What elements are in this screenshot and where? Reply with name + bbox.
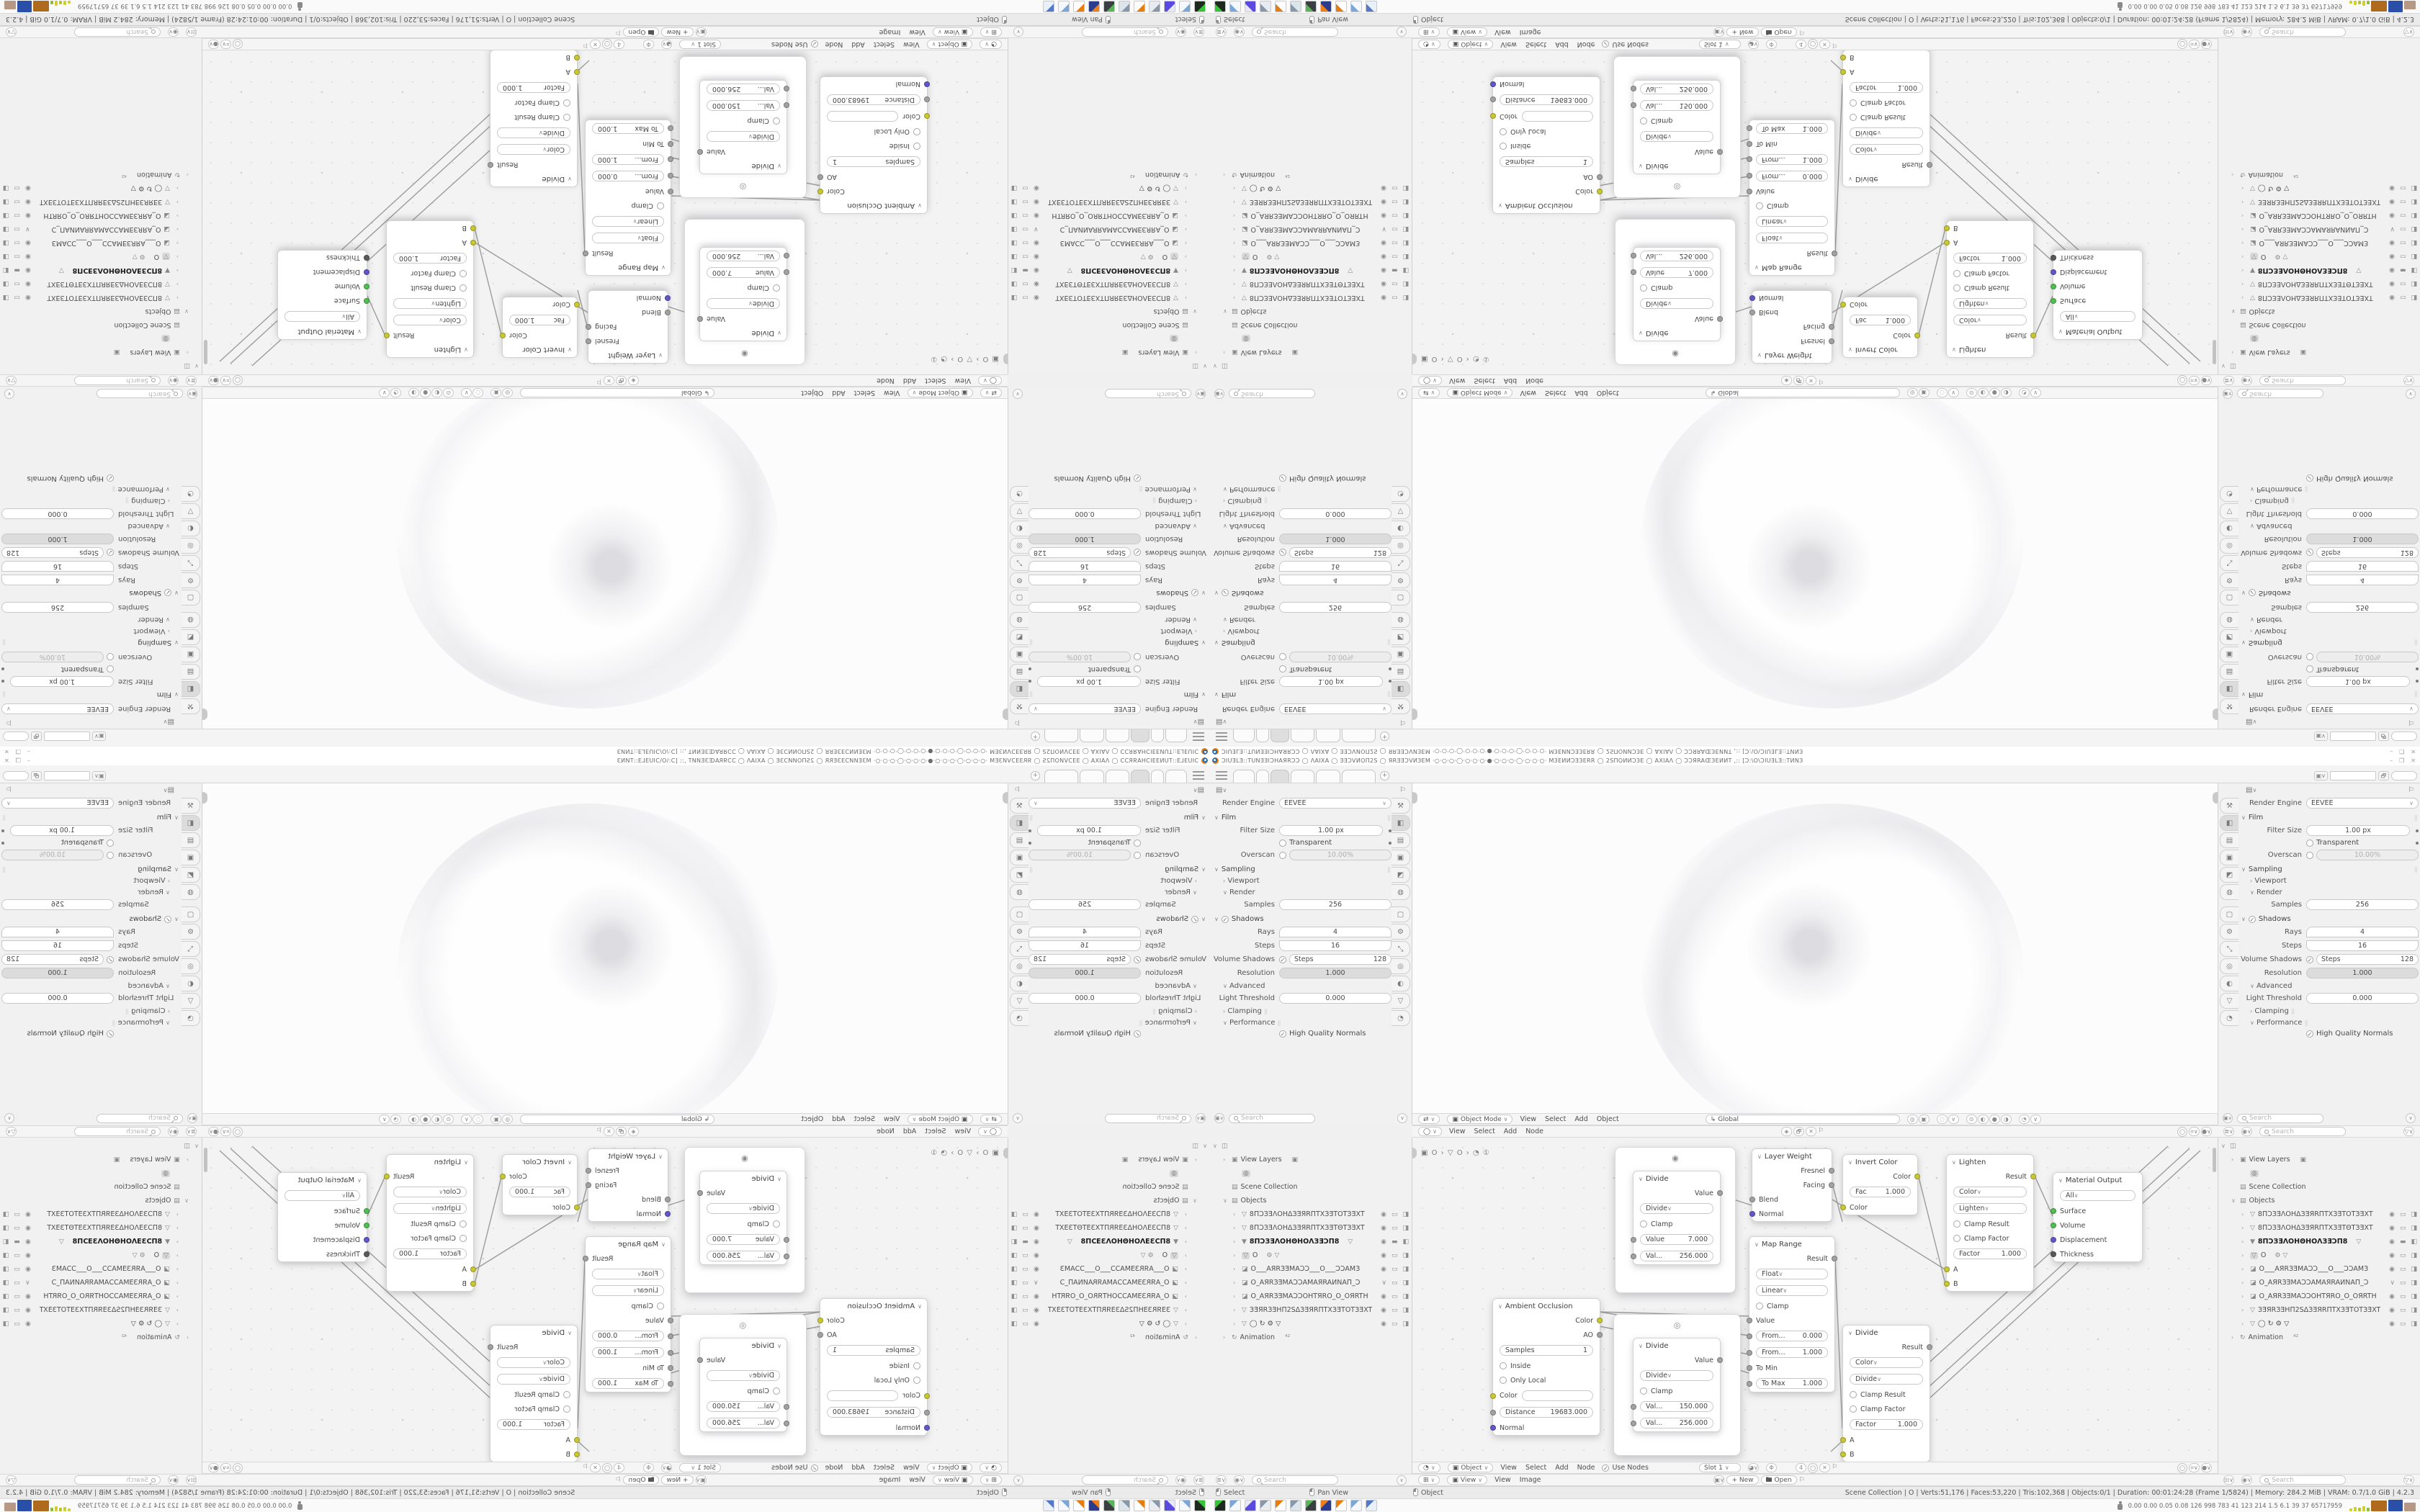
node-color-input[interactable]: Color: [820, 1387, 927, 1404]
visibility-icon[interactable]: ◨: [2411, 1252, 2417, 1259]
shading-toggles[interactable]: ◔∨: [2019, 388, 2041, 397]
shader-menu-view[interactable]: View: [1500, 1464, 1517, 1472]
slot-select[interactable]: Slot 1∨: [1699, 40, 1741, 49]
visibility-icon[interactable]: ▭: [1023, 1307, 1029, 1314]
node-field-factor[interactable]: Factor1.000: [1843, 79, 1930, 96]
prop-filter-size[interactable]: Filter Size1.00 px: [1213, 825, 1391, 836]
input-socket[interactable]: [1631, 253, 1636, 259]
node-divide[interactable]: ∨DivideValueDivide∨ClampVal...150.000Val…: [699, 80, 787, 174]
image-datablock[interactable]: ▣∨ + New 🖿 Open ⚐: [615, 27, 707, 37]
node-select[interactable]: All∨: [2053, 1187, 2142, 1204]
node-header[interactable]: ∨Lighten: [387, 1155, 473, 1169]
outliner-row[interactable]: ›▽O⚙ ▽◉▭◨: [1010, 250, 1207, 264]
visibility-icon[interactable]: ▭: [1023, 199, 1029, 206]
node-select[interactable]: Divide∨: [1633, 1200, 1720, 1217]
output-socket[interactable]: [1717, 149, 1723, 155]
output-socket[interactable]: [2030, 333, 2036, 338]
shader-bottom-right[interactable]: ◯⌗∨●∨: [2177, 1463, 2212, 1473]
user-filter-icon[interactable]: ◉∨: [2241, 27, 2252, 37]
node-select[interactable]: Divide∨: [1633, 128, 1720, 145]
visibility-icon[interactable]: ▭: [14, 1211, 21, 1218]
display-mode-icon[interactable]: ≣∨: [2223, 376, 2234, 385]
output-socket[interactable]: [817, 1318, 823, 1323]
outliner-row[interactable]: ▤Scene Collection: [1213, 318, 1410, 332]
visibility-icon[interactable]: ◨: [2411, 253, 2417, 261]
node-field-fac[interactable]: Fac1.000: [503, 1184, 577, 1200]
workspace-tab[interactable]: [1233, 770, 1255, 783]
image-menu-image[interactable]: Image: [879, 1476, 901, 1484]
viewport-menu-add[interactable]: Add: [1574, 1115, 1587, 1123]
datablock-name-field[interactable]: [2330, 771, 2376, 780]
visibility-icon[interactable]: ▭: [2400, 294, 2406, 302]
panel-subsection-performance[interactable]: ∨ Performance ⣿: [1223, 1019, 1391, 1027]
editor-type-button[interactable]: ⇄∨: [1418, 388, 1440, 397]
sidebar-toggle[interactable]: [202, 708, 207, 720]
visibility-icon[interactable]: ▭: [1023, 212, 1029, 220]
prop-overscan[interactable]: Overscan10.00%: [2240, 850, 2419, 860]
visibility-icon[interactable]: ▬: [14, 267, 21, 274]
menu-icon[interactable]: [1193, 771, 1204, 780]
outliner-row[interactable]: ›▣View Layers▣: [2221, 346, 2419, 359]
prop-steps[interactable]: Steps16: [1028, 940, 1207, 951]
node-select[interactable]: Divide∨: [700, 1367, 786, 1384]
prop-resolution[interactable]: Resolution1.000: [2240, 534, 2419, 544]
properties-tab-icon[interactable]: ▤: [1010, 832, 1028, 848]
panel-section-shadows[interactable]: ∨✓Shadows: [1, 915, 179, 923]
shader-sidebar-toggle[interactable]: [1412, 1148, 1417, 1158]
outliner-row[interactable]: ›▽◯ ↻ ⚙ ▽◉▭◨: [1213, 181, 1410, 195]
input-socket[interactable]: [784, 1237, 789, 1243]
input-socket[interactable]: [2051, 1251, 2056, 1257]
input-socket[interactable]: [924, 1410, 930, 1416]
node-divide[interactable]: ∨DivideValueDivide∨ClampVal...150.000Val…: [1633, 80, 1721, 174]
panel-subsection-viewport[interactable]: › Viewport: [1223, 877, 1391, 885]
input-socket[interactable]: [1749, 295, 1755, 301]
shader-menu-add[interactable]: Add: [1555, 40, 1568, 48]
taskbar-app-blender[interactable]: [1134, 1, 1145, 12]
editor-type-icon[interactable]: ▣∨: [1196, 389, 1206, 399]
panel-subsection-performance[interactable]: ∨ Performance ⣿: [1223, 485, 1391, 493]
properties-tab-icon[interactable]: ◧: [2220, 815, 2238, 831]
taskbar-app-documents[interactable]: [1043, 1, 1054, 12]
outliner-search-input[interactable]: Search: [2259, 1127, 2346, 1136]
node-select[interactable]: Lighten∨: [387, 1200, 473, 1217]
properties-tab-icon[interactable]: ◐: [1010, 976, 1028, 991]
output-socket[interactable]: [500, 1174, 506, 1179]
outliner-row[interactable]: ∨◫: [1, 1139, 199, 1153]
input-socket[interactable]: [668, 157, 673, 163]
outliner-row[interactable]: ›◪O_AЯRЗƎMAƆƆOHTЯRO_O_OЯRTH◉▭◨: [2221, 209, 2419, 222]
panel-subsection-render[interactable]: ∨ Render: [2250, 888, 2419, 896]
panel-subsection-performance[interactable]: ∨ Performance ⣿: [1028, 485, 1197, 493]
visibility-icon[interactable]: ◉: [25, 1211, 31, 1218]
visibility-icon[interactable]: ◉: [25, 281, 31, 288]
visibility-icon[interactable]: ◨: [1011, 1320, 1018, 1328]
outliner-row[interactable]: ›▽O⚙ ▽◉▭◨: [1010, 1248, 1207, 1262]
node-color-input[interactable]: Color: [1493, 108, 1600, 125]
visibility-icon[interactable]: ▭: [14, 1320, 21, 1328]
node-field-value[interactable]: Value7.000: [1633, 264, 1720, 281]
outliner-row[interactable]: ›▽8ПƆЗƎΛOHΔЗƎЯRПTXЗƎTΘTЗƎXT◉▭◨: [1, 1221, 199, 1235]
add-workspace-button[interactable]: +: [1380, 771, 1389, 780]
filter-icon[interactable]: ◉∨: [168, 376, 179, 385]
visibility-icon[interactable]: ▭: [1391, 226, 1398, 233]
sidebar-toggle[interactable]: [2213, 792, 2218, 804]
taskbar-app-calculator[interactable]: [1149, 1, 1160, 12]
node-map-range[interactable]: ∨Map RangeResultFloat∨Linear∨ClampValueF…: [585, 1236, 671, 1392]
output-socket[interactable]: [1829, 324, 1834, 330]
properties-tab-icon[interactable]: ◎: [2220, 538, 2238, 554]
window-control-button[interactable]: ❐: [2399, 757, 2404, 764]
node-field-val...[interactable]: Val...256.000: [700, 1415, 786, 1431]
prop-filter-size[interactable]: Filter Size1.00 px: [1028, 825, 1207, 836]
visibility-icon[interactable]: ▭: [1391, 1320, 1398, 1328]
prop-light-threshold[interactable]: Light Threshold0.000: [2240, 993, 2419, 1004]
node-header[interactable]: ∨Invert Color: [1843, 343, 1917, 357]
shader-type-select[interactable]: ▣ Object∨: [1448, 40, 1494, 49]
visibility-icon[interactable]: ◨: [1402, 240, 1409, 247]
properties-tab-icon[interactable]: ▢: [1391, 590, 1410, 606]
node-layer-weight[interactable]: ∨Layer WeightFresnelFacingBlendNormal: [588, 1148, 668, 1222]
taskbar-app-calculator2[interactable]: [1119, 1, 1130, 12]
visibility-icon[interactable]: ◉: [2389, 1252, 2395, 1259]
output-socket[interactable]: [1829, 1168, 1834, 1174]
prop-rays[interactable]: Rays4: [2240, 927, 2419, 937]
node-header[interactable]: ∨Material Output: [2053, 325, 2142, 339]
output-socket[interactable]: [817, 189, 823, 194]
shader-bottom-right[interactable]: ◯⌗∨●∨: [208, 1463, 243, 1473]
node-checkbox-clamp[interactable]: Clamp: [700, 1384, 786, 1398]
node-layer-weight[interactable]: ∨Layer WeightFresnelFacingBlendNormal: [1752, 1148, 1832, 1222]
properties-tab-icon[interactable]: ◩: [1391, 867, 1410, 883]
panel-subsection-performance[interactable]: ∨ Performance ⣿: [2250, 1019, 2419, 1027]
node-material-output[interactable]: ∨Material OutputAll∨SurfaceVolumeDisplac…: [2053, 250, 2143, 340]
output-socket[interactable]: [586, 1182, 591, 1188]
add-workspace-button[interactable]: +: [1031, 732, 1040, 741]
output-socket[interactable]: [1832, 251, 1837, 256]
outliner-search-input[interactable]: Search: [1082, 1475, 1168, 1485]
taskbar-app-notepad2[interactable]: [1058, 1, 1070, 12]
properties-tab-icon[interactable]: ⚙: [1391, 924, 1410, 940]
input-socket[interactable]: [1944, 1281, 1950, 1287]
input-socket[interactable]: [668, 1333, 673, 1339]
node-field-from...[interactable]: From...0.000: [1749, 168, 1834, 184]
panel-subsection-viewport[interactable]: › Viewport: [1, 627, 170, 635]
visibility-icon[interactable]: ▭: [1023, 1252, 1029, 1259]
copy-icon[interactable]: 🗗: [2378, 771, 2389, 780]
output-socket[interactable]: [1597, 189, 1603, 194]
visibility-icon[interactable]: ∨: [1381, 226, 1386, 233]
input-socket[interactable]: [1631, 270, 1636, 276]
node-checkbox-clamp[interactable]: Clamp: [700, 1217, 786, 1231]
prop-rays[interactable]: Rays4: [2240, 575, 2419, 585]
prop-render-engine[interactable]: Render EngineEEVEE∨: [1028, 798, 1207, 809]
node-header[interactable]: ∨Divide: [1633, 326, 1720, 341]
mode-select[interactable]: ▣ Object Mode∨: [1447, 1115, 1512, 1124]
toolbar-toggle[interactable]: [1412, 792, 1417, 804]
panel-section-film[interactable]: ∨Film⣿: [2241, 690, 2419, 698]
visibility-icon[interactable]: ∨: [2390, 1279, 2395, 1287]
prop-transparent[interactable]: Transparent: [2240, 665, 2419, 673]
properties-tab-icon[interactable]: ◎: [2220, 958, 2238, 974]
properties-tab-icon[interactable]: ◧: [1391, 681, 1410, 697]
panel-subsection-advanced[interactable]: ∨ Advanced: [1, 522, 170, 530]
viewport-menu-select[interactable]: Select: [854, 389, 875, 397]
node-field-val...[interactable]: Val...256.000: [1633, 81, 1720, 97]
shader-menu-select[interactable]: Select: [1474, 1128, 1494, 1135]
material-datablock[interactable]: ◈🗗✕⚐: [596, 1127, 639, 1136]
visibility-icon[interactable]: ◨: [1011, 1266, 1018, 1273]
output-socket[interactable]: [1927, 1344, 1932, 1350]
node-field-val...[interactable]: Val...150.000: [1633, 97, 1720, 114]
orientation-select[interactable]: ↳ Global: [520, 388, 714, 397]
properties-editor-icon[interactable]: ▤∨: [2246, 719, 2257, 726]
node-select[interactable]: Color∨: [1843, 141, 1930, 158]
use-nodes-checkbox[interactable]: ✓Use Nodes: [771, 1464, 818, 1472]
prop-transparent[interactable]: Transparent: [1, 839, 180, 847]
visibility-icon[interactable]: ◉: [1034, 1238, 1039, 1246]
node-field-val...[interactable]: Val...256.000: [1633, 248, 1720, 264]
visibility-icon[interactable]: ▭: [1391, 199, 1398, 206]
shader-bottom-right[interactable]: ◯⌗∨●∨: [2177, 40, 2212, 50]
properties-tab-icon[interactable]: ◐: [1391, 976, 1410, 991]
outliner-row[interactable]: ▤Scene Collection: [1010, 318, 1207, 332]
datablock-name-field[interactable]: [44, 732, 90, 741]
node-field-val...[interactable]: Val...150.000: [700, 97, 786, 114]
visibility-icon[interactable]: ◨: [1011, 1307, 1018, 1314]
options-icon[interactable]: ∨: [1397, 1475, 1407, 1485]
visibility-icon[interactable]: ▭: [14, 240, 21, 247]
visibility-icon[interactable]: ◉: [25, 240, 31, 247]
input-socket[interactable]: [668, 189, 673, 194]
workspace-tab[interactable]: [1151, 729, 1164, 742]
properties-tab-icon[interactable]: ▽: [1010, 993, 1028, 1009]
outliner-row[interactable]: ›▼8ПƆЗƎΛOHΘHOΛЗƎƆП8▽◉▬◧: [1010, 264, 1207, 277]
node-header[interactable]: ∨Material Output: [2053, 1173, 2142, 1187]
snap-toggles[interactable]: ◎▣: [1907, 388, 1930, 397]
input-socket[interactable]: [364, 1223, 369, 1228]
prop-filter-size[interactable]: Filter Size1.00 px: [1028, 676, 1207, 687]
prop-high-quality-normals[interactable]: ✓High Quality Normals: [1028, 474, 1207, 482]
window-control-button[interactable]: ✕: [2411, 748, 2416, 755]
outliner-row[interactable]: ›▣View Layers▣: [1010, 346, 1207, 359]
datablock-name-field[interactable]: [2330, 732, 2376, 741]
material-datablock[interactable]: ◈🗗✕⚐: [1781, 376, 1824, 385]
properties-tab-icon[interactable]: ◩: [1010, 867, 1028, 883]
node-divide[interactable]: ∨DivideValueDivide∨ClampValue7.000Val...…: [699, 247, 787, 341]
visibility-icon[interactable]: ▭: [2400, 226, 2406, 233]
node-field-from...[interactable]: From...1.000: [586, 1344, 671, 1361]
node-field-distance[interactable]: Distance19683.000: [820, 1404, 927, 1421]
workspace-tab[interactable]: [1342, 770, 1376, 783]
node-ambient-occlusion[interactable]: ∨Ambient OcclusionColorAOSamples1InsideO…: [820, 1298, 928, 1436]
window-control-button[interactable]: ✕: [4, 757, 9, 764]
node-field-value[interactable]: Value7.000: [700, 264, 786, 281]
prop-rays[interactable]: Rays4: [1, 927, 180, 937]
outliner-row[interactable]: ›▽O⚙ ▽◉▭◨: [2221, 250, 2419, 264]
visibility-icon[interactable]: ◉: [1381, 199, 1386, 206]
viewport-menu-select[interactable]: Select: [1545, 389, 1566, 397]
visibility-icon[interactable]: ◨: [1402, 1266, 1409, 1273]
panel-section-sampling[interactable]: ∨Sampling⣿: [2241, 639, 2419, 647]
editor-type-icon[interactable]: ▣∨: [1214, 389, 1224, 399]
node-field-factor[interactable]: Factor1.000: [490, 79, 577, 96]
outliner-row[interactable]: ›▽ЗƎЯRЗƎHП2SΔЗƎЯRПTXЗƎTOTЗƎXT◉▭◨: [1213, 1303, 1410, 1317]
shader-menu-view[interactable]: View: [903, 1464, 920, 1472]
prop-render-engine[interactable]: Render EngineEEVEE∨: [1213, 798, 1391, 809]
visibility-icon[interactable]: ◉: [2389, 1307, 2395, 1314]
node-select[interactable]: Linear∨: [1749, 213, 1834, 230]
properties-tab-icon[interactable]: ◍: [1391, 612, 1410, 628]
node-invert-color[interactable]: ∨Invert ColorColorFac1.000Color: [502, 297, 578, 358]
input-socket[interactable]: [1944, 1266, 1950, 1272]
properties-tab-icon[interactable]: ⚙: [1391, 572, 1410, 588]
visibility-icon[interactable]: ◨: [2411, 1293, 2417, 1300]
panel-section-shadows[interactable]: ∨✓Shadows: [2241, 589, 2419, 597]
workspace-tab[interactable]: [1233, 729, 1255, 742]
visibility-icon[interactable]: ▬: [1391, 267, 1398, 274]
visibility-icon[interactable]: ▭: [1023, 1320, 1029, 1328]
outliner-row[interactable]: ›◪O___AЯRЗƎMAƆƆ___O___ƆƆAMЗ◉▭◨: [1010, 1262, 1207, 1276]
panel-section-shadows[interactable]: ∨✓Shadows: [1028, 915, 1206, 923]
prop-light-threshold[interactable]: Light Threshold0.000: [1213, 508, 1391, 519]
visibility-icon[interactable]: ▭: [14, 253, 21, 261]
node-select[interactable]: Color∨: [1947, 312, 2033, 328]
properties-tab-icon[interactable]: ▤: [2220, 832, 2238, 848]
node-header[interactable]: ∨Ambient Occlusion: [1493, 199, 1600, 213]
prop-transparent[interactable]: Transparent: [1, 665, 180, 673]
visibility-icon[interactable]: ◉: [1034, 185, 1039, 192]
taskbar-app-documents[interactable]: [1366, 1, 1377, 12]
image-menu-image[interactable]: Image: [1520, 28, 1541, 36]
properties-tab-icon[interactable]: ◐: [2220, 521, 2238, 536]
prop-transparent[interactable]: Transparent: [1213, 839, 1391, 847]
outliner-row[interactable]: ›▽ЗƎЯRЗƎHП2SΔЗƎЯRПTXЗƎTOTЗƎXT◉▭◨: [1010, 195, 1207, 209]
node-header[interactable]: ∨Map Range: [586, 261, 671, 275]
prop-steps[interactable]: Steps16: [2240, 561, 2419, 572]
shader-menu-select[interactable]: Select: [1474, 377, 1494, 384]
viewport-menu-object[interactable]: Object: [801, 1115, 823, 1123]
outliner-row[interactable]: ›▽8ПƆЗƎΛOHΔЗƎЯRПTXЗƎTOTЗƎXT◉▭◨: [1, 291, 199, 305]
properties-tab-icon[interactable]: ⚙: [181, 572, 200, 588]
output-socket[interactable]: [586, 338, 591, 344]
input-socket[interactable]: [1631, 1421, 1636, 1426]
visibility-icon[interactable]: ◨: [1402, 199, 1409, 206]
properties-tab-icon[interactable]: ◩: [181, 867, 200, 883]
node-select[interactable]: Divide∨: [1633, 1367, 1720, 1384]
node-select[interactable]: All∨: [2053, 308, 2142, 325]
prop-rays[interactable]: Rays4: [1028, 575, 1207, 585]
options-icon[interactable]: ∨: [4, 1113, 14, 1123]
visibility-icon[interactable]: ◉: [25, 294, 31, 302]
visibility-icon[interactable]: ▭: [14, 1293, 21, 1300]
visibility-icon[interactable]: ◨: [2411, 294, 2417, 302]
node-field-samples[interactable]: Samples1: [1493, 1342, 1600, 1359]
input-socket[interactable]: [1747, 1318, 1752, 1323]
taskbar-app-calculator[interactable]: [1260, 1, 1271, 12]
properties-tab-icon[interactable]: ⚒: [1391, 798, 1410, 814]
visibility-icon[interactable]: ◨: [2411, 185, 2417, 192]
proportional-toggles[interactable]: ◌∨: [1937, 388, 1959, 397]
taskbar-app-terminal[interactable]: [1214, 1, 1226, 12]
visibility-icon[interactable]: ∨: [1034, 226, 1039, 233]
prop-resolution[interactable]: Resolution1.000: [1, 534, 180, 544]
proportional-toggles[interactable]: ◌∨: [461, 388, 483, 397]
outliner-row[interactable]: ›▽◯ ↻ ⚙ ▽◉▭◨: [1010, 1317, 1207, 1331]
outliner-row[interactable]: ›▽O⚙ ▽◉▭◨: [1213, 250, 1410, 264]
material-preview-icon[interactable]: Φ: [643, 1463, 654, 1472]
outliner-row[interactable]: ›↻Animation⁴²: [2221, 1331, 2419, 1344]
panel-subsection-render[interactable]: ∨ Render: [2250, 616, 2419, 624]
taskbar-app-notepad2[interactable]: [1350, 1, 1362, 12]
panel-subsection-viewport[interactable]: › Viewport: [1028, 877, 1197, 885]
snap-toggles[interactable]: ◎▣: [1907, 1115, 1930, 1124]
window-control-button[interactable]: ❐: [16, 757, 21, 764]
visibility-icon[interactable]: ◨: [1402, 185, 1409, 192]
input-socket[interactable]: [1490, 1393, 1496, 1399]
mode-select[interactable]: ▣ Object Mode∨: [907, 1115, 973, 1124]
editor-type-button[interactable]: ◯∨: [1418, 1127, 1442, 1136]
prop-volume-shadows[interactable]: Volume Shadows✓Steps128: [2240, 954, 2419, 965]
node-field-val...[interactable]: Val...256.000: [700, 248, 786, 264]
input-socket[interactable]: [1840, 69, 1846, 75]
input-socket[interactable]: [1840, 1437, 1846, 1443]
outliner-row[interactable]: ›▽O⚙ ▽◉▭◨: [1, 250, 199, 264]
prop-steps[interactable]: Steps16: [2240, 940, 2419, 951]
slot-select[interactable]: Slot 1∨: [679, 1463, 721, 1472]
visibility-icon[interactable]: ▬: [1023, 1238, 1029, 1246]
properties-search-input[interactable]: Search: [1105, 1114, 1191, 1123]
shader-menu-select[interactable]: Select: [925, 1128, 946, 1135]
taskbar-app-documents[interactable]: [1366, 1500, 1377, 1511]
node-checkbox-clamp-factor[interactable]: Clamp Factor: [1843, 1402, 1930, 1416]
panel-subsection-render[interactable]: ∨ Render: [1028, 888, 1197, 896]
panel-section-film[interactable]: ∨Film⣿: [1, 814, 179, 822]
input-socket[interactable]: [665, 1197, 671, 1202]
visibility-icon[interactable]: ▬: [1023, 267, 1029, 274]
taskbar-app-calculator2[interactable]: [1290, 1500, 1301, 1511]
visibility-icon[interactable]: ◨: [1011, 199, 1018, 206]
workspace-tab[interactable]: [1291, 729, 1314, 742]
input-socket[interactable]: [668, 1318, 673, 1323]
properties-tab-icon[interactable]: ▣: [181, 850, 200, 865]
display-mode-icon[interactable]: 𝍖∨: [2223, 1475, 2234, 1485]
prop-resolution[interactable]: Resolution1.000: [1028, 534, 1207, 544]
visibility-icon[interactable]: ▬: [2400, 1238, 2406, 1246]
taskbar-app-firefox[interactable]: [1320, 1500, 1332, 1511]
output-socket[interactable]: [697, 316, 703, 322]
visibility-icon[interactable]: ◨: [3, 1266, 9, 1273]
snap-toggles[interactable]: ◎▣: [490, 1115, 513, 1124]
options-icon[interactable]: ∨: [1013, 389, 1023, 399]
outliner-row[interactable]: ◍: [1010, 332, 1207, 346]
prop-volume-shadows[interactable]: Volume Shadows✓Steps128: [1028, 547, 1207, 558]
visibility-icon[interactable]: ◉: [25, 199, 31, 206]
properties-tab-icon[interactable]: ▢: [1010, 590, 1028, 606]
viewport-3d[interactable]: [1412, 399, 2218, 729]
node-field-val...[interactable]: Val...256.000: [700, 1248, 786, 1264]
taskbar-app-blender[interactable]: [1275, 1, 1286, 12]
outliner-row[interactable]: ›▽8ПƆЗƎΛOHΔЗƎЯRПTXЗƎTΘTЗƎXT◉▭◨: [2221, 277, 2419, 291]
node-header[interactable]: ∨Divide: [700, 1338, 786, 1353]
properties-tab-icon[interactable]: ◧: [2220, 681, 2238, 697]
output-socket[interactable]: [697, 1357, 703, 1363]
visibility-icon[interactable]: ◨: [1011, 1225, 1018, 1232]
outliner-row[interactable]: ›◪O_AЯRЗƎMAƆƆAMAЯRAИNAП_Ɔ∨▭◨: [1010, 222, 1207, 236]
node-header[interactable]: ∨Layer Weight: [588, 1149, 668, 1164]
panel-subsection-clamping[interactable]: › Clamping ⣿: [2250, 497, 2419, 505]
input-socket[interactable]: [924, 1425, 930, 1431]
